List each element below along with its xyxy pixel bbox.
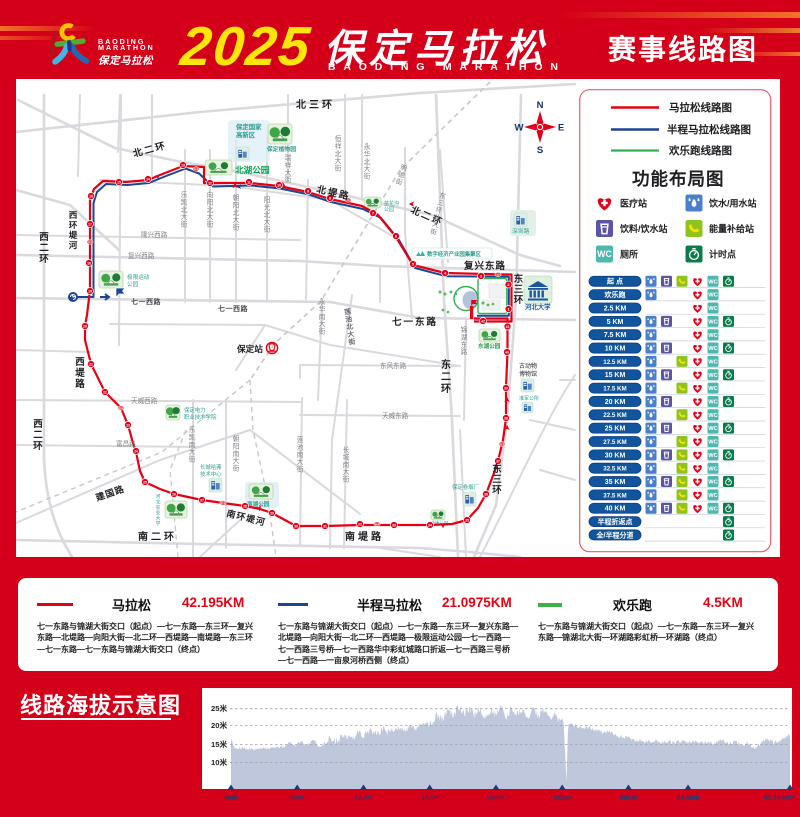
svg-text:42.195km: 42.195km (763, 795, 794, 802)
svg-text:34.5km: 34.5km (677, 795, 700, 802)
svg-text:20km: 20km (487, 795, 504, 802)
svg-text:15km: 15km (421, 795, 438, 802)
svg-text:5km: 5km (290, 795, 304, 802)
svg-text:30km: 30km (620, 795, 637, 802)
svg-text:20米: 20米 (211, 720, 227, 730)
svg-text:0km: 0km (224, 795, 238, 802)
svg-text:25km: 25km (554, 795, 571, 802)
svg-text:15米: 15米 (211, 739, 227, 749)
svg-text:10km: 10km (355, 795, 372, 802)
svg-text:25米: 25米 (211, 703, 227, 713)
svg-text:10米: 10米 (211, 757, 227, 767)
